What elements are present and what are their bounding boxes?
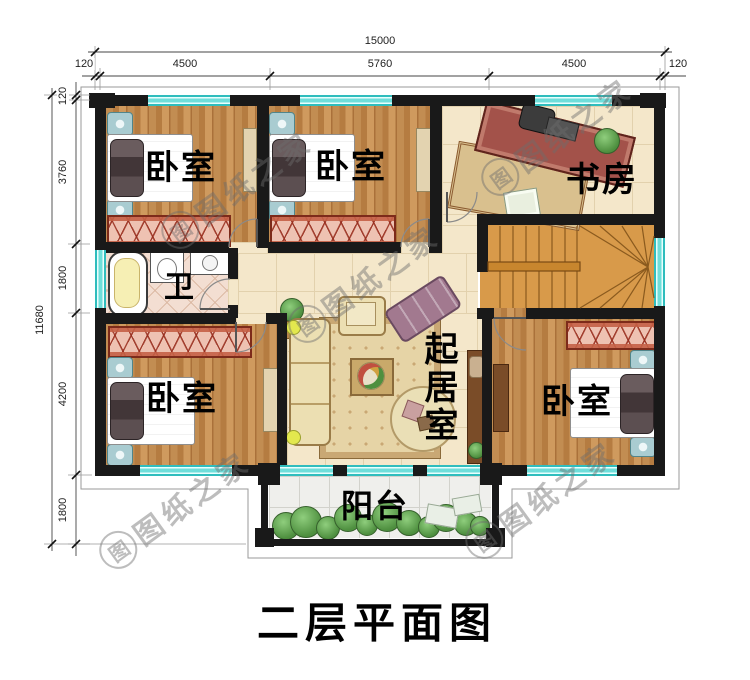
- interior-wall: [95, 313, 236, 324]
- dim-top-bay3: 4500: [560, 58, 588, 70]
- dim-top-right-offset: 120: [667, 58, 689, 70]
- nightstand: [107, 112, 133, 136]
- interior-wall: [477, 214, 488, 272]
- watermark-logo-icon: 图: [92, 523, 145, 576]
- window: [95, 250, 106, 308]
- room-label-bathroom: 卫: [164, 273, 196, 303]
- interior-wall: [257, 106, 269, 248]
- interior-wall: [477, 214, 665, 225]
- window: [140, 465, 232, 476]
- wall-shelf: [416, 128, 431, 192]
- wall-shelf: [243, 128, 257, 192]
- column: [480, 463, 502, 485]
- wall-shelf: [263, 368, 278, 432]
- interior-wall: [429, 242, 442, 253]
- column: [258, 463, 280, 485]
- floor-lamp-icon: [286, 320, 301, 335]
- room-label-bedroom-bottom-right: 卧室: [541, 385, 613, 419]
- room-label-balcony: 阳台: [341, 490, 409, 522]
- column: [89, 93, 115, 108]
- sink-basin: [202, 255, 218, 271]
- nightstand: [107, 357, 133, 379]
- bathtub-basin: [114, 258, 140, 308]
- door-threshold: [401, 242, 429, 253]
- page-title: 二层平面图: [257, 590, 497, 651]
- room-label-bedroom-bottom-left: 卧室: [146, 382, 218, 416]
- column: [640, 93, 666, 108]
- nightstand: [107, 444, 133, 466]
- nightstand: [630, 437, 656, 457]
- window: [535, 95, 612, 106]
- dresser: [493, 364, 509, 432]
- door-threshold: [236, 313, 266, 324]
- interior-wall: [277, 313, 287, 476]
- door-threshold: [494, 308, 526, 319]
- room-label-bedroom-top-left: 卧室: [145, 151, 217, 185]
- bed-pillows: [272, 139, 306, 197]
- dim-left-top-offset: 120: [57, 85, 69, 107]
- window: [654, 238, 665, 306]
- hall-floor-nook: [442, 225, 478, 253]
- balcony-door-glass: [427, 465, 480, 476]
- dim-top-bay1: 4500: [171, 58, 199, 70]
- room-label-living-room: 起居室: [421, 331, 455, 445]
- bed-pillows: [620, 374, 654, 434]
- dim-left-bay3: 4200: [57, 380, 69, 408]
- dim-top-total: 15000: [363, 35, 398, 47]
- floor-plan-page: 15000 120 4500 5760 4500 120 11680 120 3…: [0, 0, 750, 680]
- interior-wall: [95, 242, 229, 253]
- nightstand: [269, 112, 295, 136]
- stairs-floor: [480, 225, 654, 308]
- window: [148, 95, 230, 106]
- balcony-rail-right: [492, 485, 499, 531]
- dim-left-bay1: 3760: [57, 158, 69, 186]
- balcony-door-glass: [347, 465, 413, 476]
- window: [527, 465, 617, 476]
- door-threshold: [228, 279, 238, 305]
- interior-wall: [430, 106, 442, 246]
- mullion: [333, 465, 347, 476]
- sofa: [289, 318, 331, 446]
- room-label-bedroom-top-middle: 卧室: [315, 150, 387, 184]
- interior-wall: [482, 313, 492, 476]
- wardrobe: [108, 326, 252, 358]
- plant-icon: [594, 128, 620, 154]
- armchair-cushion: [346, 302, 376, 326]
- wardrobe: [566, 321, 658, 350]
- nightstand: [630, 350, 656, 370]
- mullion: [413, 465, 427, 476]
- dim-left-total: 11680: [34, 303, 46, 337]
- bed-pillows: [110, 382, 144, 440]
- floor-lamp-icon: [286, 430, 301, 445]
- dim-left-bay2: 1800: [57, 264, 69, 292]
- dim-left-bay4: 1800: [57, 496, 69, 524]
- flower-centerpiece: [357, 362, 385, 390]
- bed-pillows: [110, 139, 144, 197]
- interior-wall: [228, 248, 238, 279]
- dim-top-left-offset: 120: [73, 58, 95, 70]
- balcony-rail-front: [261, 539, 499, 546]
- interior-wall: [526, 308, 665, 319]
- door-threshold: [442, 214, 478, 225]
- dim-top-bay2: 5760: [366, 58, 394, 70]
- interior-wall: [268, 242, 401, 253]
- room-label-study: 书房: [566, 163, 638, 197]
- window: [300, 95, 392, 106]
- balcony-door-glass: [280, 465, 333, 476]
- balcony-rail-left: [261, 485, 268, 531]
